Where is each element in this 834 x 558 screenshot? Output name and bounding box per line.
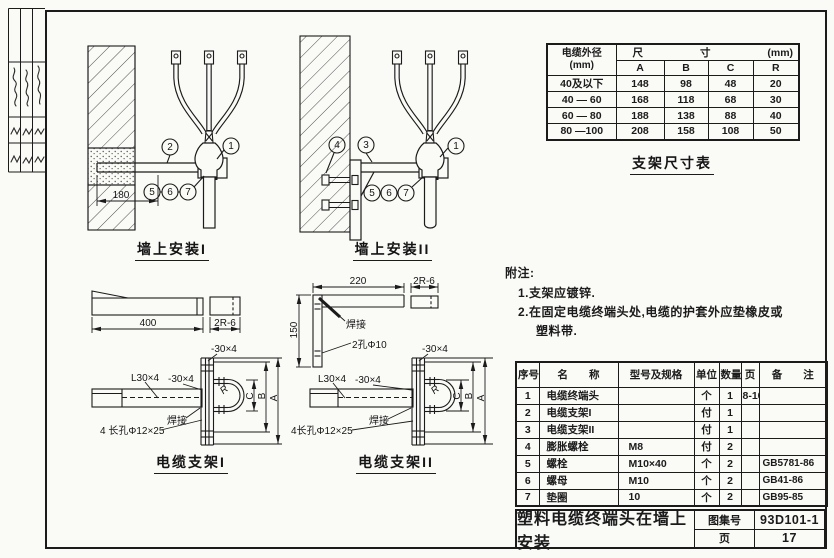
parts-table-row: 7 垫圈 10 个 2 GB95-85 (516, 489, 827, 506)
callout-6: 6 (167, 187, 173, 198)
dim-c-label: C (452, 392, 463, 399)
weld-label: 焊接 (369, 414, 389, 427)
notes-heading: 附注: (505, 264, 827, 281)
angle-steel-label: L30×4 (318, 374, 347, 385)
holes-top-label: 2孔Φ10 (352, 339, 387, 351)
note-line: 2.在固定电缆终端头处,电缆的护套外应垫橡皮或 (505, 303, 827, 322)
col-unit: 单位 (694, 362, 719, 387)
dim-table-row: 60 — 80188138 8840 (547, 108, 799, 124)
bracket-dimension-table: 电缆外径 (mm) 尺 寸 (mm) A B C R 40及以下14898 48… (546, 43, 800, 141)
dim-400-label: 400 (140, 318, 157, 329)
callout-5: 5 (149, 187, 155, 198)
note-line: 塑料带. (505, 322, 827, 341)
dim-c-label: C (245, 392, 256, 399)
slot-holes-label: 4长孔Φ12×25 (291, 425, 353, 437)
terminal-body (195, 143, 223, 177)
cable-below (425, 177, 437, 228)
signature-block (0, 0, 50, 180)
parts-table-row: 2 电缆支架I 付 1 (516, 404, 827, 421)
title-block: 塑料电缆终端头在墙上安装 图集号 93D101-1 页 17 (515, 509, 826, 549)
col-seq: 序号 (516, 362, 539, 387)
dim-table-row: 80 —100208158 10850 (547, 124, 799, 140)
embed-depth-label: 180 (113, 190, 130, 201)
flat-steel-label: -30×4 (168, 374, 194, 385)
atlas-no-value: 93D101-1 (755, 511, 824, 529)
terminal-junction (426, 131, 434, 143)
col-size-group: 尺 寸 (mm) (616, 44, 799, 61)
caption-wall-install-2: 墙上安装II (285, 239, 500, 261)
parts-table: 序号 名 称 型号及规格 单位 数量 页 备 注 1 电缆终端头 个 1 8-1… (515, 361, 828, 507)
bracket1-plan-view (92, 291, 240, 315)
col-spec: 型号及规格 (618, 362, 694, 387)
page-label: 页 (695, 530, 755, 548)
flat-steel-top-label: -30×4 (211, 344, 237, 355)
dim-b-label: B (464, 392, 475, 399)
callout-4: 4 (334, 140, 340, 151)
flat-steel-label: -30×4 (355, 375, 381, 386)
parts-table-row: 5 螺栓 M10×40 个 2 GB5781-86 (516, 455, 827, 472)
col-r: R (753, 61, 799, 76)
callout-7: 7 (185, 187, 191, 198)
flat-steel-top-label: -30×4 (422, 344, 448, 355)
parts-table-row: 4 膨胀螺栓 M8 付 2 (516, 438, 827, 455)
cable-below (204, 177, 216, 228)
callout-7: 7 (403, 188, 409, 199)
col-cable-diameter: 电缆外径 (mm) (547, 44, 616, 76)
atlas-no-label: 图集号 (695, 511, 755, 529)
col-name: 名 称 (539, 362, 618, 387)
terminal-body (416, 143, 444, 177)
parts-table-row: 1 电缆终端头 个 1 8-10 (516, 387, 827, 404)
diagram-wall-install-2: 4 3 1 5 6 7 (285, 28, 500, 240)
dim-a-label: A (269, 394, 280, 401)
page-number: 17 (755, 530, 824, 548)
bracket2-front-view (313, 295, 438, 367)
col-page: 页 (741, 362, 759, 387)
dim-b-label: B (257, 392, 268, 399)
col-note: 备 注 (759, 362, 827, 387)
weld-top-label: 焊接 (346, 318, 366, 331)
dim-table-row: 40 — 60168118 6830 (547, 92, 799, 108)
col-a: A (616, 61, 664, 76)
diagram-cable-bracket-2: 220 2R-6 150 焊接 2孔Φ10 (288, 273, 504, 453)
radius-label: R (429, 384, 442, 397)
col-b: B (664, 61, 708, 76)
caption-cable-bracket-1: 电缆支架I (85, 452, 297, 474)
slot-holes-label: 4 长孔Φ12×25 (100, 425, 165, 437)
dim-220-label: 220 (350, 276, 367, 287)
dim-2r6-label: 2R-6 (413, 276, 435, 287)
col-qty: 数量 (719, 362, 741, 387)
terminal-lugs (393, 51, 468, 64)
terminal-lugs (172, 51, 247, 64)
wall-section (88, 46, 135, 230)
angle-steel-label: L30×4 (131, 373, 160, 384)
callout-6: 6 (386, 188, 392, 199)
callout-2: 2 (167, 142, 173, 153)
terminal-junction (205, 131, 213, 143)
weld-label: 焊接 (167, 414, 187, 427)
dim-150-label: 150 (289, 321, 300, 338)
caption-wall-install-1: 墙上安装I (62, 239, 282, 261)
dim-2r6-label: 2R-6 (214, 318, 236, 329)
parts-table-row: 6 螺母 M10 个 2 GB41-86 (516, 472, 827, 489)
callout-5: 5 (369, 188, 375, 199)
radius-label: R (218, 384, 231, 397)
drawing-sheet: 180 2 1 5 6 7 墙上安装I (0, 0, 834, 558)
diagram-cable-bracket-1: 400 2R-6 (85, 283, 297, 451)
parts-table-row: 3 电缆支架II 付 1 (516, 421, 827, 438)
callout-1: 1 (228, 141, 234, 152)
dim-a-label: A (476, 394, 487, 401)
caption-cable-bracket-2: 电缆支架II (288, 452, 504, 474)
callout-3: 3 (363, 140, 369, 151)
diagram-wall-install-1: 180 2 1 5 6 7 (62, 28, 282, 240)
dim-table-row: 40及以下14898 4820 (547, 76, 799, 92)
grout-pocket (88, 148, 135, 185)
cable-terminal-head (393, 51, 468, 228)
notes: 附注: 1.支架应镀锌. 2.在固定电缆终端头处,电缆的护套外应垫橡皮或 塑料带… (505, 264, 827, 341)
caption-dimension-table: 支架尺寸表 (546, 153, 798, 175)
note-line: 1.支架应镀锌. (505, 284, 827, 303)
callout-1: 1 (453, 141, 459, 152)
col-c: C (708, 61, 753, 76)
signature-scribbles (11, 66, 44, 163)
sheet-title: 塑料电缆终端头在墙上安装 (517, 511, 695, 547)
